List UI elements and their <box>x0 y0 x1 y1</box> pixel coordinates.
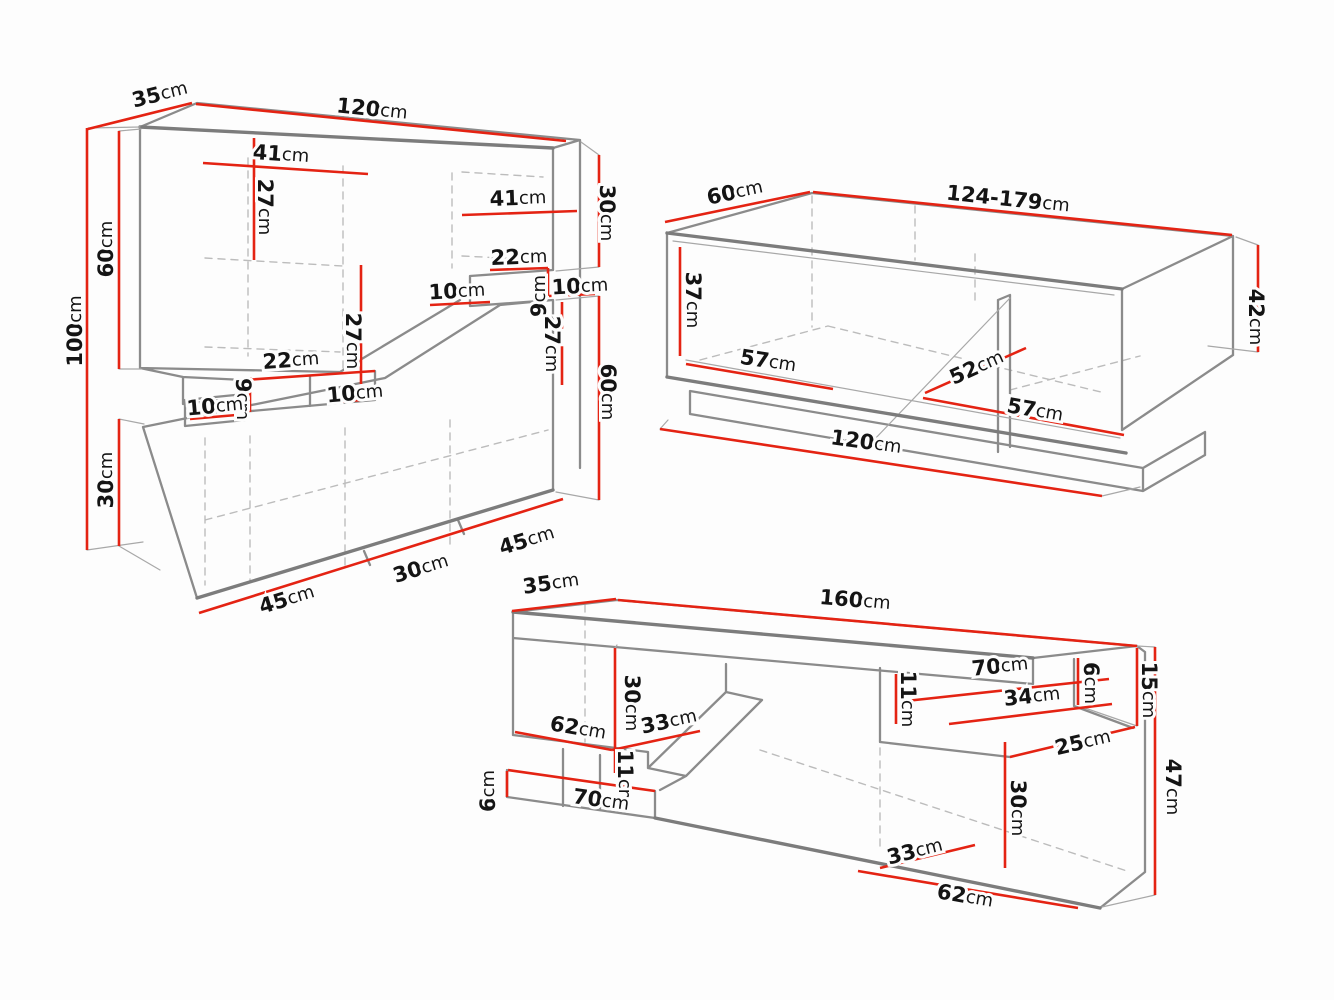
dim-tv-shelf-25-label: 25cm <box>1052 724 1113 760</box>
dim-table-floor-57a-label: 57cm <box>738 345 798 378</box>
coffee-table-outline <box>667 193 1233 491</box>
dim-tv-width-160-label: 160cm <box>819 585 892 615</box>
furniture-dimension-diagram: 35cm 120cm 41cm 27cm 41cm 30cm 22cm 9cm … <box>0 0 1334 1000</box>
tv-stand-outline <box>507 600 1145 908</box>
dim-wall-left-30-label: 30cm <box>94 452 118 509</box>
dim-wall-height-27c-label: 27cm <box>540 316 564 373</box>
dim-wall-total-100-label: 100cm <box>63 295 87 366</box>
dim-table-height-42-label: 42cm <box>1244 289 1268 346</box>
dim-wall-left-60-label: 60cm <box>94 221 118 278</box>
dim-wall-right-30-label: 30cm <box>595 185 619 242</box>
dim-tv-height-6-right-label: 6cm <box>1079 662 1103 704</box>
dim-tv-shelf-70-top-label: 70cm <box>970 651 1029 681</box>
dim-tv-depth-35-label: 35cm <box>521 567 580 599</box>
dim-tv-height-15-label: 15cm <box>1137 662 1161 719</box>
dim-table-height-37-label: 37cm <box>681 272 705 329</box>
dim-wall-gap-10a-label: 10cm <box>428 278 486 305</box>
dim-wall-bottom-30-label: 30cm <box>390 548 451 588</box>
furniture-dimension-diagram-page: 35cm 120cm 41cm 27cm 41cm 30cm 22cm 9cm … <box>0 0 1334 1000</box>
dim-wall-height-27b-label: 27cm <box>341 313 365 370</box>
dim-wall-gap-10d-label: 10cm <box>326 379 385 408</box>
dim-wall-gap-9r-label: 9cm <box>527 275 551 317</box>
dim-tv-height-11-mid-label: 11cm <box>896 671 920 728</box>
coffee-table-dimension-lines <box>660 192 1258 496</box>
dim-tv-height-47-label: 47cm <box>1161 759 1185 816</box>
dim-tv-height-30-right-label: 30cm <box>1006 780 1030 837</box>
dim-table-floor-57b-label: 57cm <box>1005 393 1065 426</box>
dim-table-width-120-label: 120cm <box>829 425 903 459</box>
dim-wall-bottom-45b-label: 45cm <box>496 520 557 560</box>
wall-unit-drawing: 35cm 120cm 41cm 27cm 41cm 30cm 22cm 9cm … <box>63 76 620 619</box>
tv-stand-drawing: 35cm 160cm 30cm 62cm 33cm 11cm 6cm 70cm … <box>476 567 1185 913</box>
dim-wall-gap-10b-label: 10cm <box>551 273 609 300</box>
dim-wall-shelf-41b-label: 41cm <box>489 185 546 211</box>
dim-tv-floor-33-label: 33cm <box>884 833 945 870</box>
dim-wall-shelf-22b-label: 22cm <box>262 346 320 374</box>
dim-wall-right-60-label: 60cm <box>596 364 620 421</box>
coffee-table-drawing: 60cm 124-179cm 37cm 57cm 52cm 57cm 42cm … <box>660 174 1268 496</box>
dim-tv-shelf-34-label: 34cm <box>1002 681 1061 711</box>
dim-wall-shelf-22a-label: 22cm <box>490 244 547 270</box>
dim-wall-height-27a-label: 27cm <box>253 179 277 236</box>
dim-wall-shelf-41a-label: 41cm <box>252 140 310 168</box>
dim-tv-height-6-left-label: 6cm <box>476 770 500 812</box>
